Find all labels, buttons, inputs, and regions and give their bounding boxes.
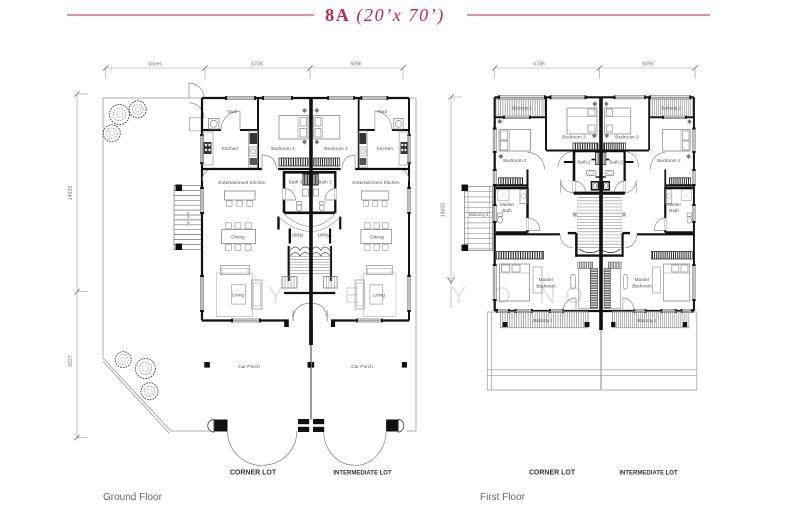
svg-text:Balcony 2: Balcony 2	[661, 106, 681, 111]
svg-text:CORNER LOT: CORNER LOT	[230, 470, 277, 477]
svg-text:8A (20’x 70’): 8A (20’x 70’)	[325, 5, 445, 26]
svg-text:Utility: Utility	[318, 233, 330, 239]
svg-text:Master: Master	[635, 277, 650, 283]
svg-text:Bedroom: Bedroom	[632, 284, 651, 290]
svg-text:Y: Y	[451, 282, 466, 308]
svg-text:Yard: Yard	[377, 109, 387, 115]
svg-text:14939: 14939	[68, 186, 74, 201]
svg-text:Y: Y	[268, 282, 283, 308]
svg-text:INTERMEDIATE LOT: INTERMEDIATE LOT	[333, 471, 392, 477]
svg-text:First Floor: First Floor	[480, 492, 526, 503]
svg-text:Bath 2: Bath 2	[577, 160, 591, 165]
svg-text:14600: 14600	[441, 203, 447, 218]
svg-text:Kitchen: Kitchen	[377, 146, 393, 152]
svg-text:Car Porch: Car Porch	[238, 364, 260, 370]
svg-text:Ground Floor: Ground Floor	[103, 492, 163, 503]
svg-text:6706: 6706	[533, 62, 545, 68]
svg-text:Terrace: Terrace	[186, 211, 191, 226]
svg-text:6527: 6527	[68, 355, 74, 367]
svg-text:Bedroom 3: Bedroom 3	[615, 135, 639, 141]
svg-text:O: O	[565, 282, 583, 308]
svg-text:Bedroom: Bedroom	[536, 284, 555, 290]
svg-text:Living: Living	[373, 293, 385, 298]
svg-text:Kitchen: Kitchen	[222, 146, 238, 152]
svg-text:Bath 3: Bath 3	[318, 180, 332, 185]
svg-text:6706: 6706	[251, 62, 263, 68]
svg-text:E: E	[344, 282, 359, 308]
svg-text:Entertainment Kitchen: Entertainment Kitchen	[352, 180, 400, 186]
svg-text:Balcony 3: Balcony 3	[469, 212, 489, 217]
svg-text:Bath 3: Bath 3	[289, 180, 303, 185]
svg-text:Bedroom 2: Bedroom 2	[503, 158, 527, 164]
svg-text:Master: Master	[539, 277, 554, 283]
svg-text:Balcony 2: Balcony 2	[512, 106, 532, 111]
svg-text:6096: 6096	[350, 62, 362, 68]
svg-text:Dining: Dining	[231, 235, 245, 241]
svg-text:INTERMEDIATE LOT: INTERMEDIATE LOT	[619, 471, 678, 477]
svg-text:Balcony 1: Balcony 1	[533, 318, 553, 323]
svg-text:Master: Master	[667, 202, 682, 207]
svg-text:Balcony 1: Balcony 1	[637, 318, 657, 323]
svg-text:Entertainment Kitchen: Entertainment Kitchen	[218, 180, 266, 186]
svg-text:Yard: Yard	[227, 109, 237, 115]
svg-text:Dining: Dining	[370, 235, 384, 241]
svg-text:Bath: Bath	[669, 208, 679, 213]
svg-text:Bath: Bath	[502, 208, 512, 213]
svg-text:Bedroom 4: Bedroom 4	[324, 146, 348, 152]
svg-text:6096: 6096	[642, 62, 654, 68]
svg-text:Varies: Varies	[148, 62, 163, 68]
svg-text:Bath 2: Bath 2	[609, 160, 623, 165]
svg-text:Car Porch: Car Porch	[351, 364, 373, 370]
svg-text:Bedroom 2: Bedroom 2	[657, 158, 681, 164]
svg-text:Living: Living	[232, 293, 244, 298]
svg-text:CORNER LOT: CORNER LOT	[529, 470, 576, 477]
svg-text:Bedroom 3: Bedroom 3	[562, 135, 586, 141]
svg-text:Bedroom 4: Bedroom 4	[271, 146, 295, 152]
svg-text:Utility: Utility	[292, 233, 304, 239]
svg-text:Master: Master	[500, 202, 515, 207]
